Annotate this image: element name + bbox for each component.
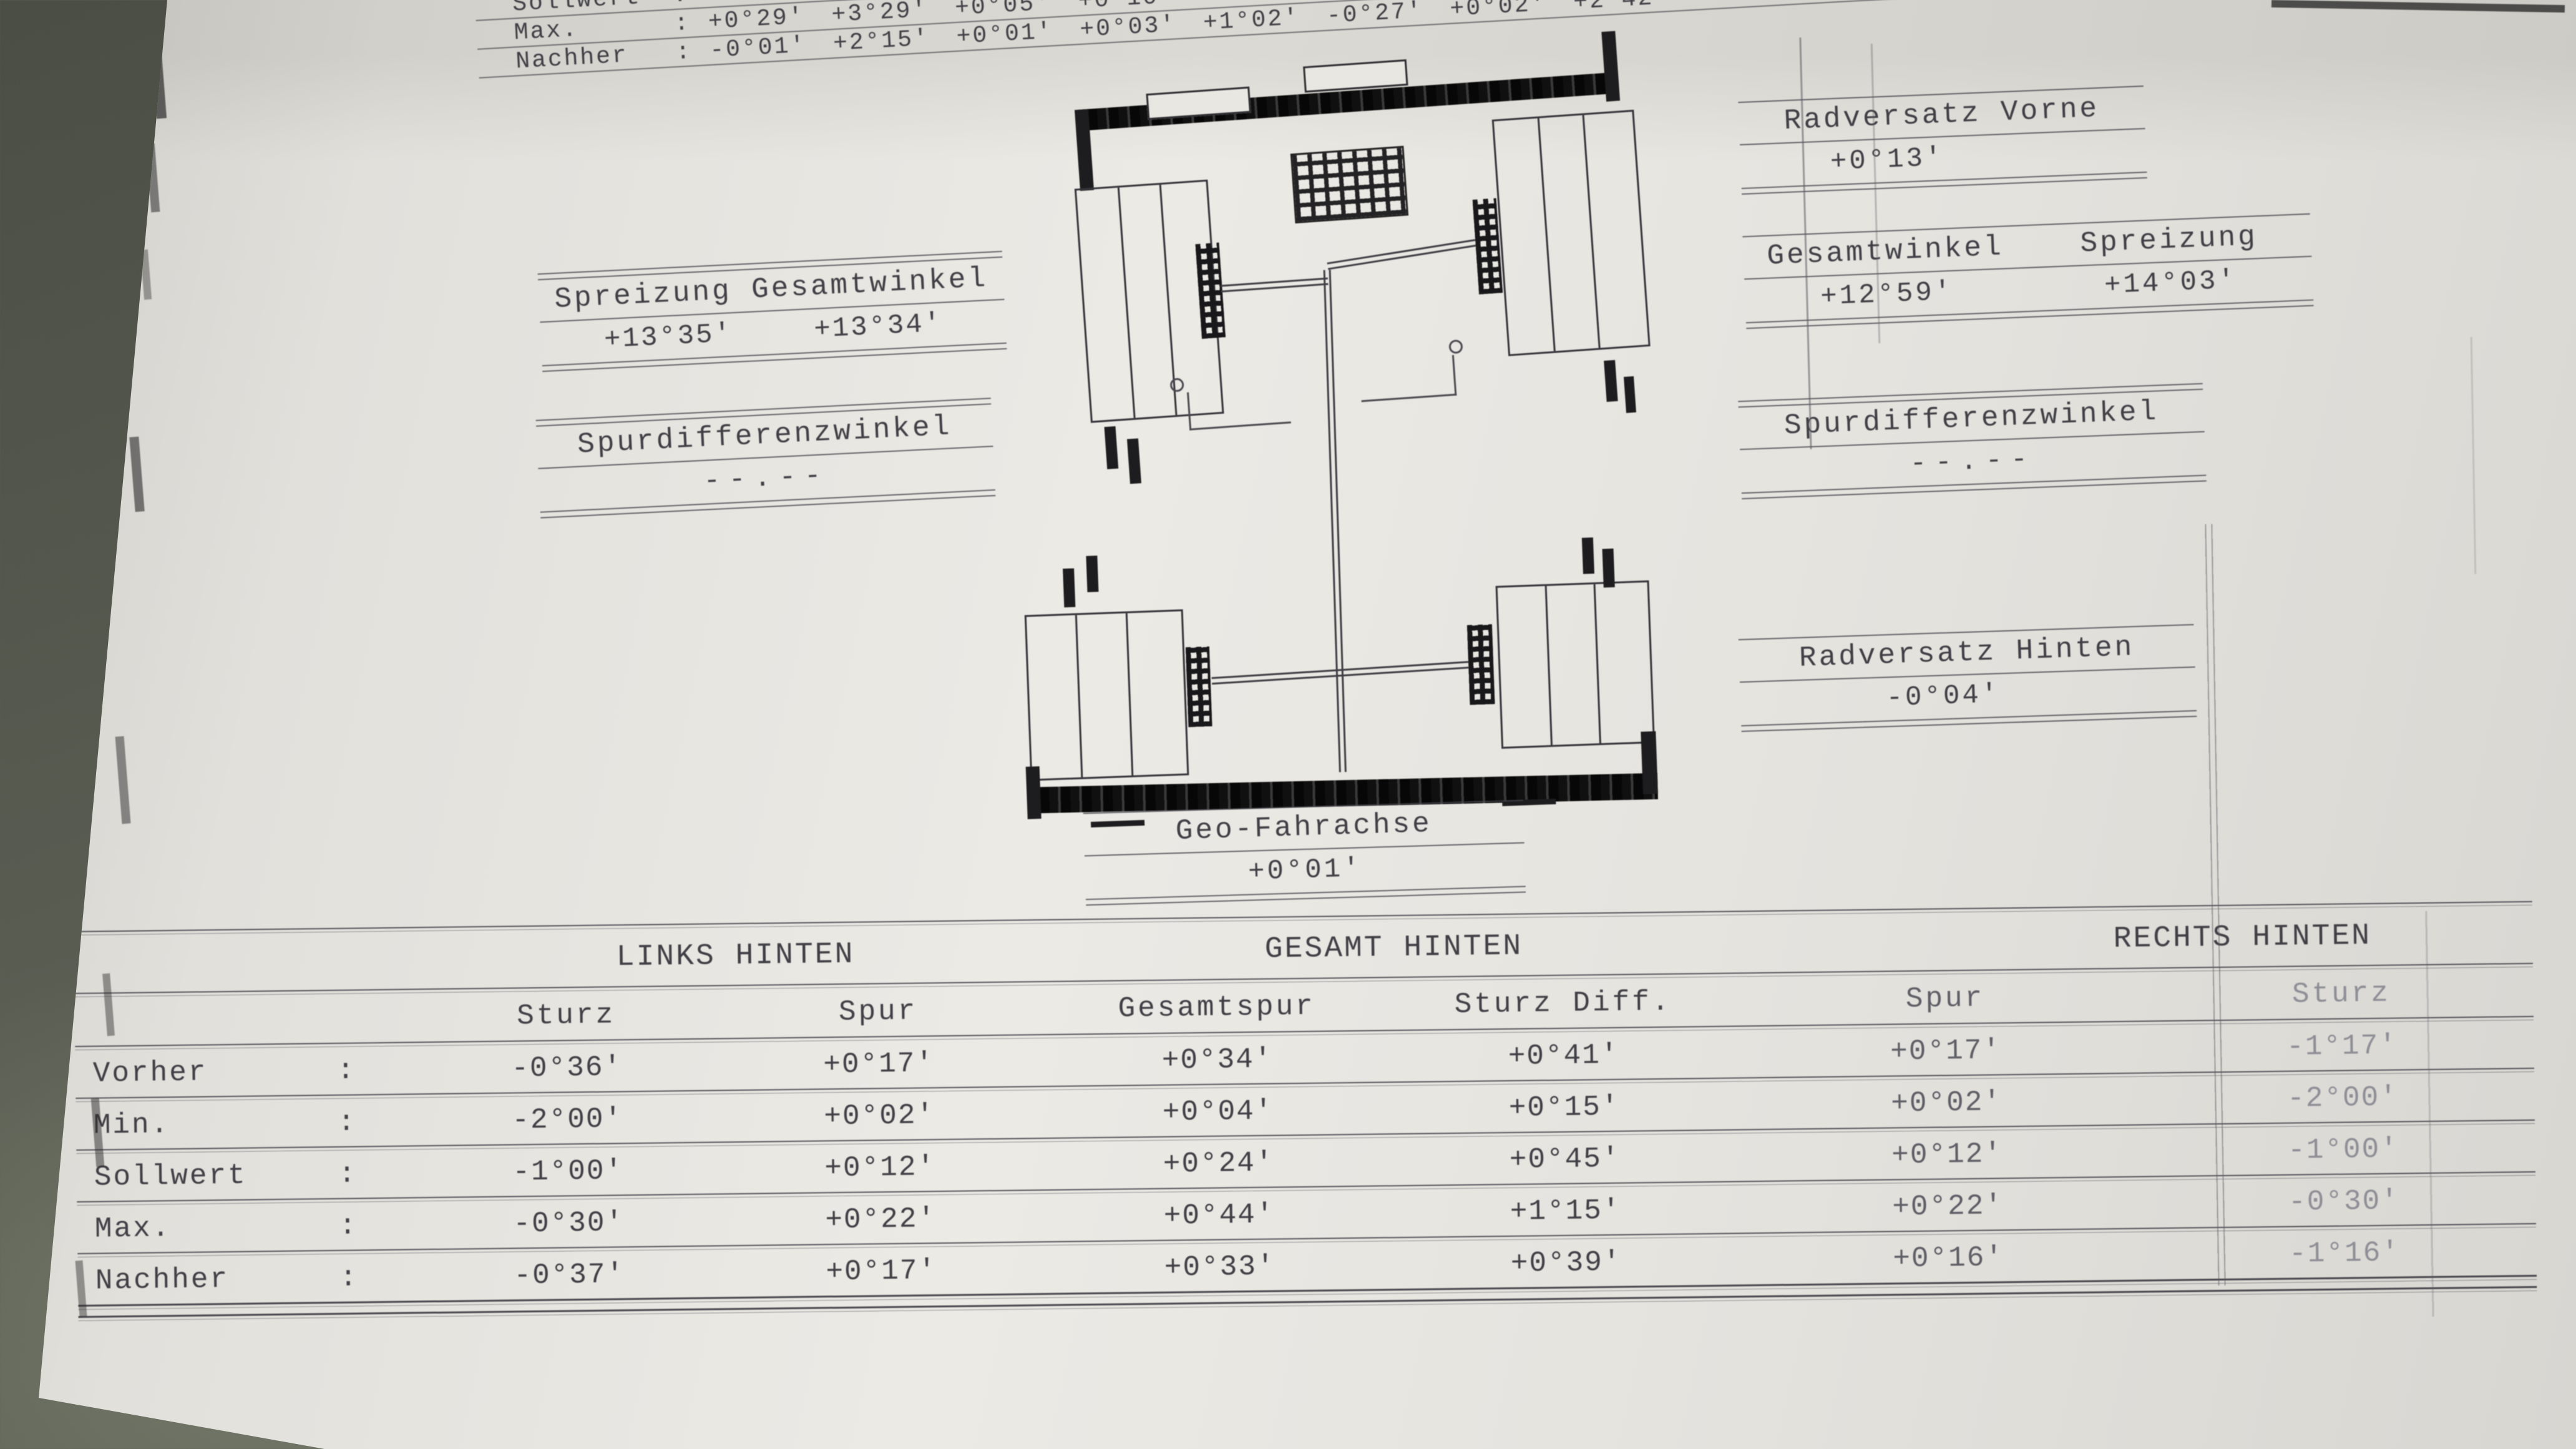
annotation-gesamtwinkel-spreizung: Gesamtwinkel Spreizung +12°59' +14°03' [1742,213,2313,329]
rear-right-sensor-head [1467,624,1495,705]
cell: -2°00' [425,1102,710,1138]
row-colon: : [669,9,695,37]
column-header: Sturz Diff. [1385,985,1741,1022]
cell: -1°16' [2152,1235,2537,1272]
cell: +0°34' [1048,1042,1386,1078]
cell: +0°16' [1744,1239,2153,1277]
alignment-report-paper: Sollwert : -0°37' Max. : +0°29' +3°29' +… [0,0,2576,1449]
column-header: Gesamtspur [1048,989,1385,1026]
cell: -1°00' [426,1154,710,1190]
column-header: Spur [1740,980,2150,1017]
wheel-mark [1603,549,1615,588]
cell: -1°00' [2151,1131,2535,1169]
cell: +0°17' [708,1046,1049,1083]
annotation-spreizung-gesamtwinkel-left: Spreizung Gesamtwinkel +13°35' +13°34' [538,251,1007,372]
cell: +0°45' [1387,1141,1743,1178]
row-label: Vorher [92,1056,207,1090]
row-colon: : [337,1054,356,1086]
edge-smear [2271,0,2565,12]
toner-smudge [146,144,160,213]
cell: +0°04' [1049,1093,1387,1130]
cell: +0°17' [711,1253,1051,1290]
group-header-rechts-hinten: RECHTS HINTEN [1846,916,2576,960]
row-label: Nachher [95,1263,230,1297]
toner-smudge [140,250,152,300]
annotation-geo-fahrachse: Geo-Fahrachse +0°01' [1083,800,1526,906]
cell: +0°24' [1050,1145,1387,1182]
print-streak-line [2471,337,2477,574]
rear-left-wheel [1025,609,1189,781]
cell: +0°12' [1742,1136,2152,1173]
toner-smudge [115,736,131,824]
cell: +1°15' [1387,1193,1744,1229]
row-colon: : [338,1106,357,1138]
rear-axle-line [1212,661,1469,685]
value-cell: -0°01' [696,31,821,65]
cell: +0°33' [1051,1249,1388,1286]
value-right: +13°34' [813,308,943,346]
wheel-mark [1086,555,1098,592]
annotation-radversatz-vorne: Radversatz Vorne +0°13' [1738,85,2147,195]
rear-beam-left-bracket [1026,766,1042,819]
row-colon: : [339,1209,358,1242]
cell: -1°17' [2150,1028,2534,1065]
rear-left-sensor-head [1186,646,1212,727]
cell: -0°30' [2152,1183,2536,1221]
rear-right-wheel [1496,580,1655,749]
cell: +0°22' [710,1201,1051,1238]
cell: +0°39' [1388,1244,1744,1281]
cell: -2°00' [2150,1080,2535,1117]
row-colon: : [671,38,697,66]
toner-smudge [129,437,144,512]
column-header: Spur [708,993,1048,1030]
cell: +0°15' [1386,1089,1742,1126]
rear-axle-table: LINKS HINTEN GESAMT HINTEN RECHTS HINTEN… [74,901,2537,1321]
row-label: Sollwert [94,1159,247,1194]
group-header-links-hinten: LINKS HINTEN [423,935,1048,977]
cell: +0°02' [709,1098,1050,1134]
cell: +0°02' [1742,1084,2151,1121]
annotation-radversatz-hinten: Radversatz Hinten -0°04' [1739,624,2197,732]
row-colon: : [338,1158,358,1190]
toner-smudge [150,37,167,119]
cell: +0°12' [710,1149,1050,1186]
cell: +0°41' [1385,1037,1742,1074]
vehicle-top-view-diagram [986,21,1697,853]
cell: -0°37' [427,1257,711,1294]
wheel-mark [1582,537,1594,574]
rear-beam-right-bracket [1641,731,1658,794]
group-header-gesamt-hinten: GESAMT HINTEN [1047,927,1740,969]
cell: -0°30' [426,1206,711,1242]
value-left: +13°35' [603,318,733,356]
row-colon: : [339,1261,359,1294]
column-header: Sturz [424,998,708,1034]
value-cell: +2°15' [819,24,944,58]
annotation-spurdifferenzwinkel-left: Spurdifferenzwinkel --.-- [536,398,996,518]
cell: +0°17' [1741,1032,2150,1070]
row-label: Max. [95,1212,172,1245]
report-content: Sollwert : -0°37' Max. : +0°29' +3°29' +… [0,0,2576,1449]
row-label: Min. [93,1108,170,1141]
cell: -0°36' [424,1050,709,1086]
cell: +0°44' [1050,1197,1388,1234]
value-cell: +0°29' [694,2,819,36]
rear-axle-group [982,19,1698,854]
cell: +0°22' [1743,1188,2152,1225]
column-header: Sturz [2149,975,2534,1013]
wheel-mark [1063,568,1075,608]
row-colon: : [668,0,694,9]
